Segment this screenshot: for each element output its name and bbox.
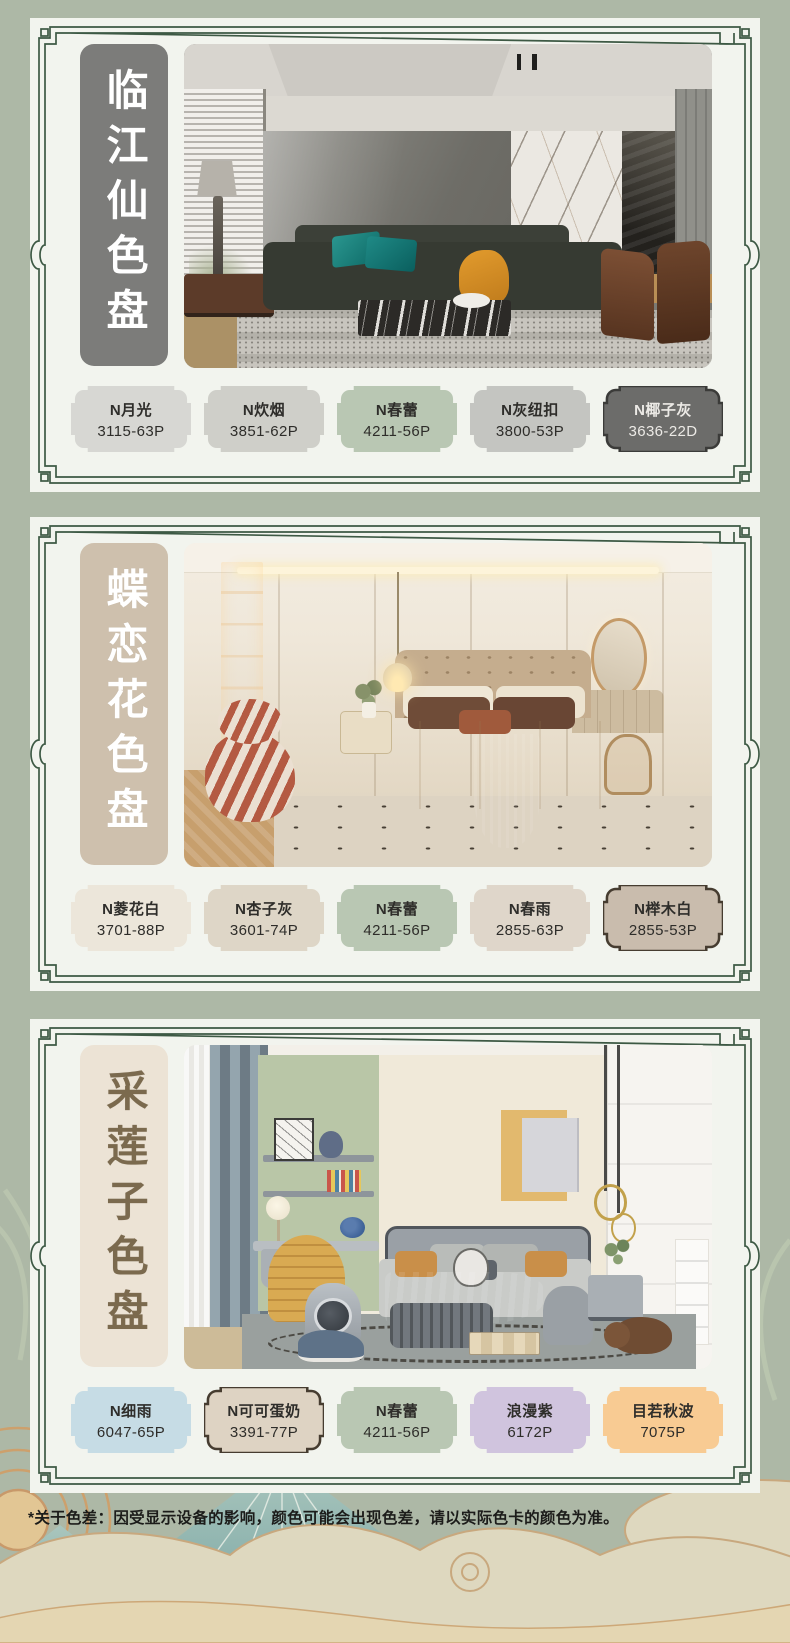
gray-doll-shape <box>543 1286 593 1344</box>
palette-card-cailianzi: 采莲子色盘 <box>30 1019 760 1493</box>
swatch-name: 浪漫紫 <box>507 1400 554 1421</box>
cove-light-shape <box>237 567 659 573</box>
vase-shape <box>362 702 376 718</box>
palette-title: 蝶恋花色盘 <box>103 567 145 842</box>
swatch-name: N可可蛋奶 <box>227 1400 300 1421</box>
swatch-row: N细雨 6047-65P N可可蛋奶 3391-77P N春蕾 4211-56P <box>71 1387 723 1453</box>
swatch-row: N菱花白 3701-88P N杏子灰 3601-74P N春蕾 4211-56P <box>71 885 723 951</box>
color-swatch: N春蕾 4211-56P <box>337 885 457 951</box>
swatch-code: 4211-56P <box>363 922 430 939</box>
pet-carrier-window-shape <box>314 1298 352 1335</box>
bunny-doll-shape <box>319 1131 343 1159</box>
palette-title-block: 临江仙色盘 <box>80 44 168 366</box>
swatch-name: N炊烟 <box>243 399 285 420</box>
swatch-name: N杏子灰 <box>235 898 293 919</box>
swatch-code: 2855-53P <box>629 922 697 939</box>
picture-frame-shape <box>274 1118 314 1161</box>
nightstand-shape <box>588 1275 643 1321</box>
swatch-code: 3115-63P <box>97 423 164 440</box>
swatch-code: 3601-74P <box>230 922 298 939</box>
palette-card-linjiangxian: 临江仙色盘 <box>30 18 760 492</box>
color-swatch: N杏子灰 3601-74P <box>204 885 324 951</box>
ceiling-panel-shape <box>268 44 511 97</box>
color-disclaimer: *关于色差：因受显示设备的影响，颜色可能会出现色差，请以实际色卡的颜色为准。 <box>28 1506 619 1528</box>
color-swatch: N春雨 2855-63P <box>470 885 590 951</box>
color-swatch: N可可蛋奶 3391-77P <box>204 1387 324 1453</box>
color-swatch: 浪漫紫 6172P <box>470 1387 590 1453</box>
color-swatch: N春蕾 4211-56P <box>337 386 457 452</box>
color-swatch: N灰纽扣 3800-53P <box>470 386 590 452</box>
swatch-name: N春雨 <box>509 898 551 919</box>
room-photo-kids-bedroom <box>184 1045 712 1369</box>
palette-title: 采莲子色盘 <box>103 1069 145 1344</box>
color-swatch: N菱花白 3701-88P <box>71 885 191 951</box>
color-swatch: N月光 3115-63P <box>71 386 191 452</box>
swatch-code: 4211-56P <box>363 1424 430 1441</box>
caramel-pillow-shape <box>525 1251 567 1277</box>
palette-title-block: 采莲子色盘 <box>80 1045 168 1367</box>
swatch-code: 7075P <box>640 1424 685 1441</box>
swatch-code: 3636-22D <box>628 423 697 440</box>
sneakers-shape <box>298 1330 364 1362</box>
swatch-name: N月光 <box>110 399 152 420</box>
books-shape <box>327 1170 361 1193</box>
ball-lamp-shape <box>266 1196 290 1220</box>
swatch-code: 6047-65P <box>97 1424 165 1441</box>
palette-title-block: 蝶恋花色盘 <box>80 543 168 865</box>
swatch-name: 目若秋波 <box>632 1400 694 1421</box>
pendant-lamp-shape <box>383 663 413 692</box>
hanging-cord-shape <box>604 1045 607 1191</box>
swatch-code: 3391-77P <box>230 1424 298 1441</box>
ceiling-vent-shape <box>532 54 537 70</box>
ceiling-vent-shape <box>517 54 522 70</box>
room-photo-bedroom <box>184 543 712 867</box>
wood-floor-shape <box>184 1327 247 1369</box>
swatch-code: 3800-53P <box>496 423 564 440</box>
palette-card-dielianhua: 蝶恋花色盘 <box>30 517 760 991</box>
swatch-code: 4211-56P <box>363 423 430 440</box>
swatch-name: N椰子灰 <box>634 399 692 420</box>
swatch-code: 3851-62P <box>230 423 298 440</box>
lamp-stem-shape <box>277 1218 280 1241</box>
bed-runner-shape <box>474 734 540 847</box>
swatch-name: N春蕾 <box>376 399 418 420</box>
color-swatch: N细雨 6047-65P <box>71 1387 191 1453</box>
leather-chair-shape <box>657 239 710 344</box>
swatch-row: N月光 3115-63P N炊烟 3851-62P N春蕾 4211-56P <box>71 386 723 452</box>
swatch-name: N灰纽扣 <box>501 399 559 420</box>
blue-hydrangea-shape <box>340 1217 365 1238</box>
swatch-code: 2855-63P <box>496 922 564 939</box>
color-swatch: N椰子灰 3636-22D <box>603 386 723 452</box>
leather-bench-shape <box>184 274 274 317</box>
color-swatch: N炊烟 3851-62P <box>204 386 324 452</box>
floor-lamp-shade-shape <box>197 161 237 197</box>
teal-pillow-shape <box>365 236 418 273</box>
striped-bean-chair-shape <box>205 731 295 822</box>
wall-beam-shape <box>258 96 680 134</box>
swatch-name: N菱花白 <box>102 898 160 919</box>
swatch-name: N细雨 <box>110 1400 152 1421</box>
striped-bean-chair-top-shape <box>218 699 281 744</box>
room-photo-living-room <box>184 44 712 368</box>
swatch-code: 3701-88P <box>97 922 165 939</box>
bear-plush-head-shape <box>604 1322 630 1348</box>
swatch-code: 6172P <box>507 1424 552 1441</box>
marble-coffee-table-shape <box>358 300 511 336</box>
plant-shape <box>601 1236 635 1275</box>
swatch-name: N春蕾 <box>376 898 418 919</box>
color-swatch: N春蕾 4211-56P <box>337 1387 457 1453</box>
leather-chair-shape <box>601 248 654 342</box>
carpet-edge-shape <box>184 313 242 368</box>
palette-poster: 临江仙色盘 <box>0 0 790 1643</box>
swatch-name: N榉木白 <box>634 898 692 919</box>
color-swatch: 目若秋波 7075P <box>603 1387 723 1453</box>
toy-blocks-shape <box>469 1332 540 1355</box>
vanity-mirror-shape <box>591 618 647 699</box>
palette-title: 临江仙色盘 <box>103 68 145 343</box>
wave-clouds <box>0 1480 790 1643</box>
gray-artwork-shape <box>522 1118 579 1193</box>
swatch-name: N春蕾 <box>376 1400 418 1421</box>
color-swatch: N榉木白 2855-53P <box>603 885 723 951</box>
